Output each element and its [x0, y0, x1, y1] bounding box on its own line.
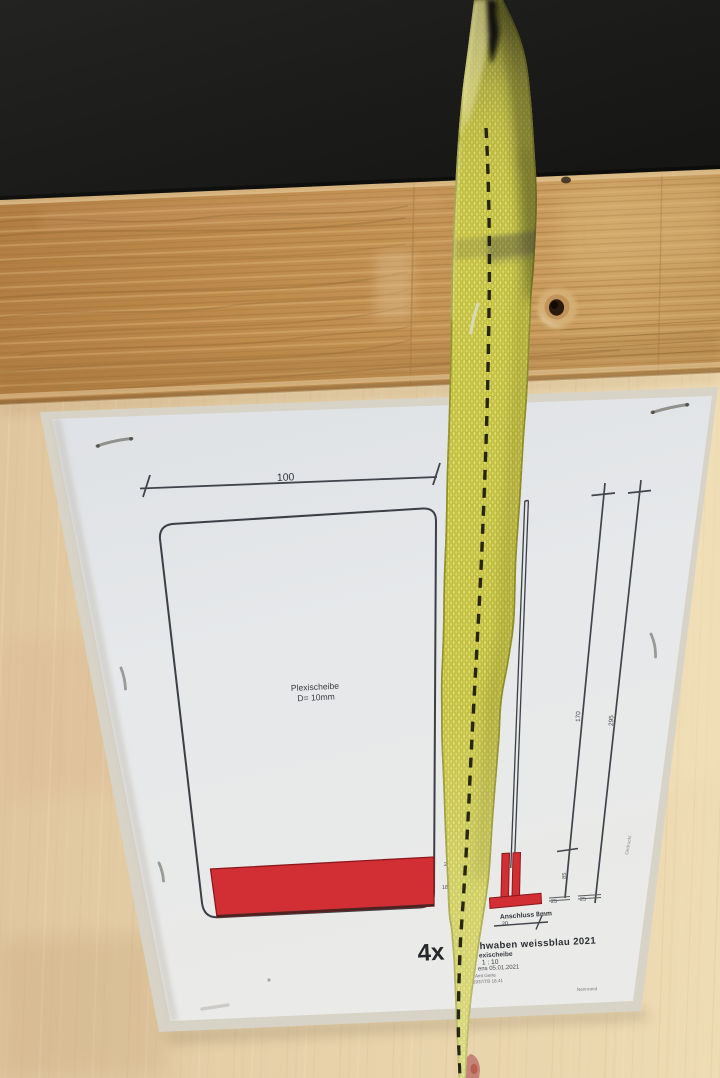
- svg-text:25: 25: [551, 899, 558, 905]
- svg-text:170: 170: [575, 711, 582, 722]
- svg-text:D= 10mm: D= 10mm: [297, 691, 335, 703]
- svg-text:85: 85: [562, 873, 568, 879]
- svg-text:295: 295: [608, 715, 615, 726]
- svg-text:20: 20: [502, 921, 509, 927]
- svg-text:4x: 4x: [417, 939, 446, 967]
- svg-text:Nennrand: Nennrand: [577, 986, 598, 992]
- svg-text:100: 100: [277, 471, 295, 484]
- svg-text:25: 25: [580, 897, 587, 903]
